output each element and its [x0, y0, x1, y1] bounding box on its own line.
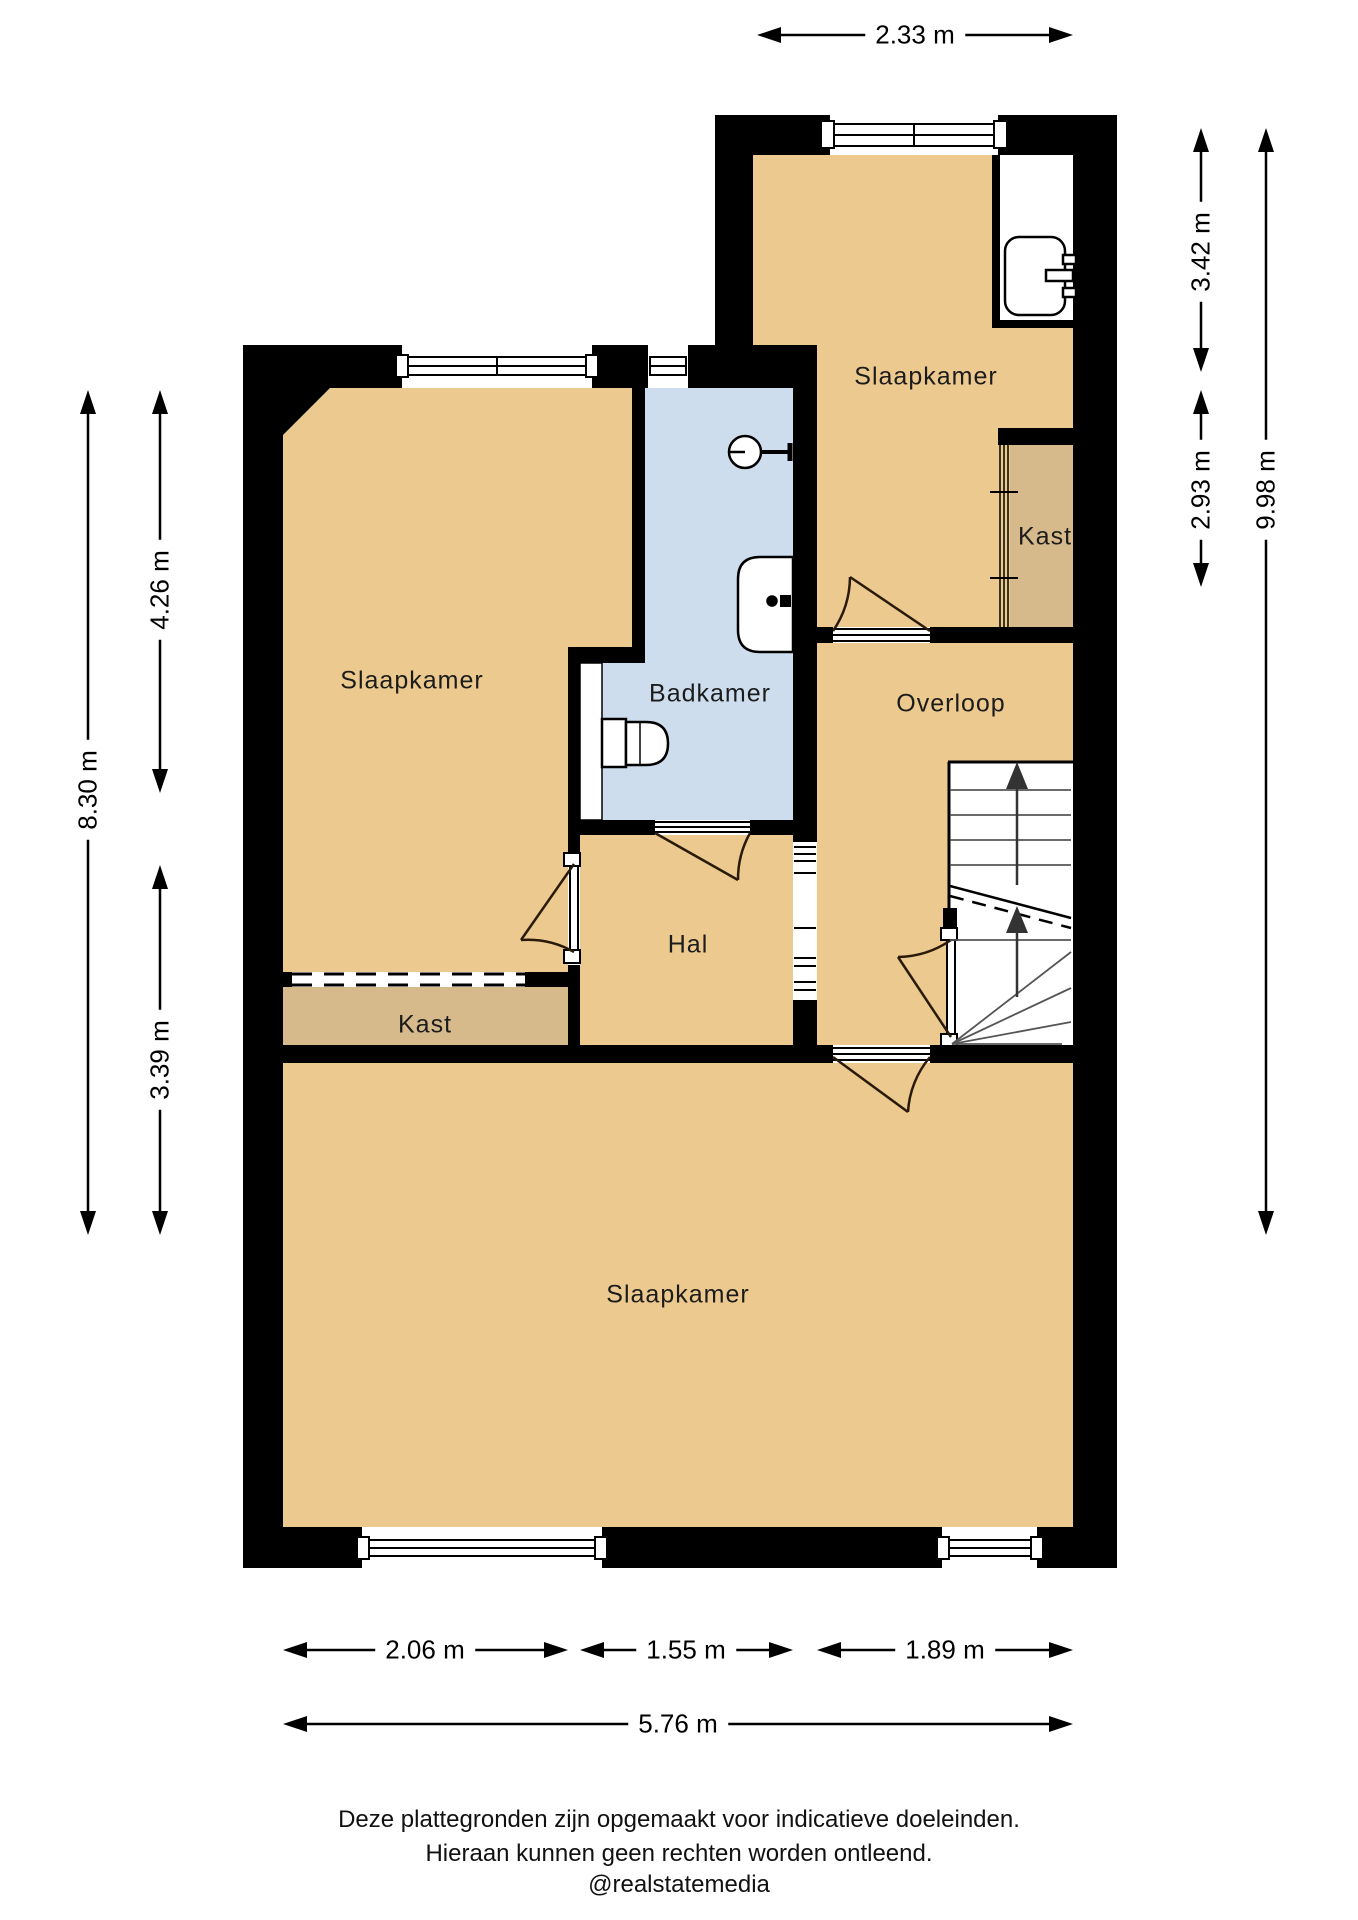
window-top-small — [650, 357, 686, 375]
window-bottom-left — [357, 1537, 607, 1559]
window-bottom-right — [937, 1537, 1043, 1559]
dim-label-left-total: 8.30 m — [73, 740, 104, 840]
room-label-slaapkamer-left: Slaapkamer — [340, 667, 483, 696]
dim-label-bottom-right: 1.89 m — [895, 1635, 995, 1666]
dim-label-right-top: 3.42 m — [1186, 202, 1217, 302]
dim-label-right-total: 9.98 m — [1251, 440, 1282, 540]
dim-label-left-bottom: 3.39 m — [145, 1010, 176, 1110]
kast-left-folding-door — [292, 972, 525, 987]
room-label-hal: Hal — [668, 931, 709, 960]
room-label-slaapkamer-bottom: Slaapkamer — [606, 1281, 749, 1310]
room-label-badkamer: Badkamer — [649, 680, 771, 709]
washbasin-icon-bathroom — [738, 557, 793, 652]
dim-label-bottom-total: 5.76 m — [628, 1709, 728, 1740]
toilet-icon — [602, 719, 668, 767]
threshold-overloop-top-door — [833, 629, 930, 641]
window-top-section — [821, 121, 1007, 148]
dim-label-bottom-middle: 1.55 m — [636, 1635, 736, 1666]
stairwell-fill — [948, 762, 1073, 1045]
dim-label-top-width: 2.33 m — [865, 20, 965, 51]
room-label-slaapkamer-top: Slaapkamer — [854, 363, 997, 392]
footer-disclaimer-line2: Hieraan kunnen geen rechten worden ontle… — [0, 1840, 1358, 1868]
floorplan-drawing — [0, 0, 1358, 1920]
dim-label-bottom-left: 2.06 m — [375, 1635, 475, 1666]
room-label-overloop: Overloop — [896, 690, 1005, 719]
footer-credit: @realstatemedia — [0, 1871, 1358, 1899]
window-top-left — [396, 355, 598, 377]
room-label-kast-left: Kast — [398, 1011, 452, 1040]
floorplan-canvas: Slaapkamer Kast Slaapkamer Badkamer Over… — [0, 0, 1358, 1920]
dim-label-left-top: 4.26 m — [145, 540, 176, 640]
passage-hal-overloop — [794, 842, 816, 1000]
bathroom-niche — [580, 663, 602, 820]
threshold-overloop-bottom-door — [833, 1048, 930, 1060]
dim-right-total — [1258, 128, 1274, 1235]
room-label-kast-right: Kast — [1018, 523, 1072, 552]
washbasin-icon-bedroom — [1005, 237, 1076, 315]
dim-label-right-middle: 2.93 m — [1186, 440, 1217, 540]
footer-disclaimer-line1: Deze plattegronden zijn opgemaakt voor i… — [0, 1806, 1358, 1834]
threshold-badkamer-door — [655, 822, 750, 832]
